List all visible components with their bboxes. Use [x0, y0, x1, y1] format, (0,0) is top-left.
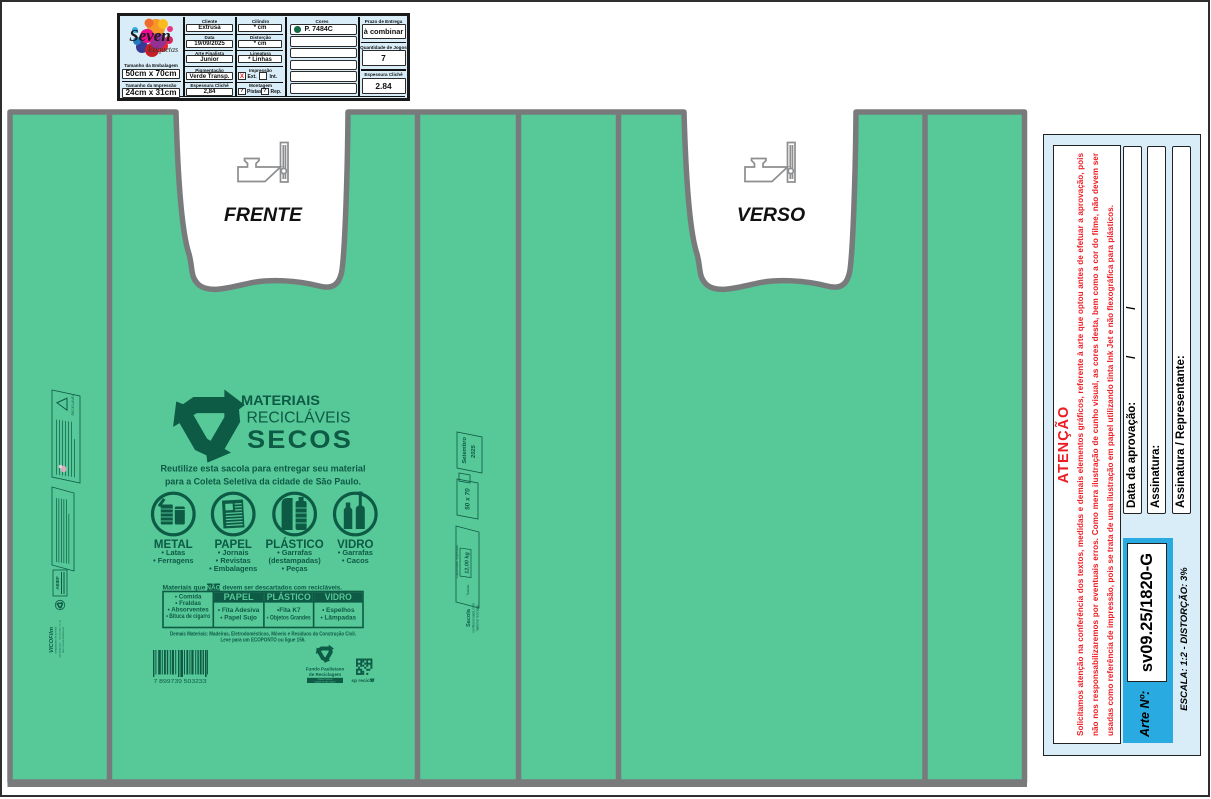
svg-text:Etiquetas: Etiquetas	[147, 45, 178, 54]
svg-text:Seven: Seven	[129, 26, 171, 45]
